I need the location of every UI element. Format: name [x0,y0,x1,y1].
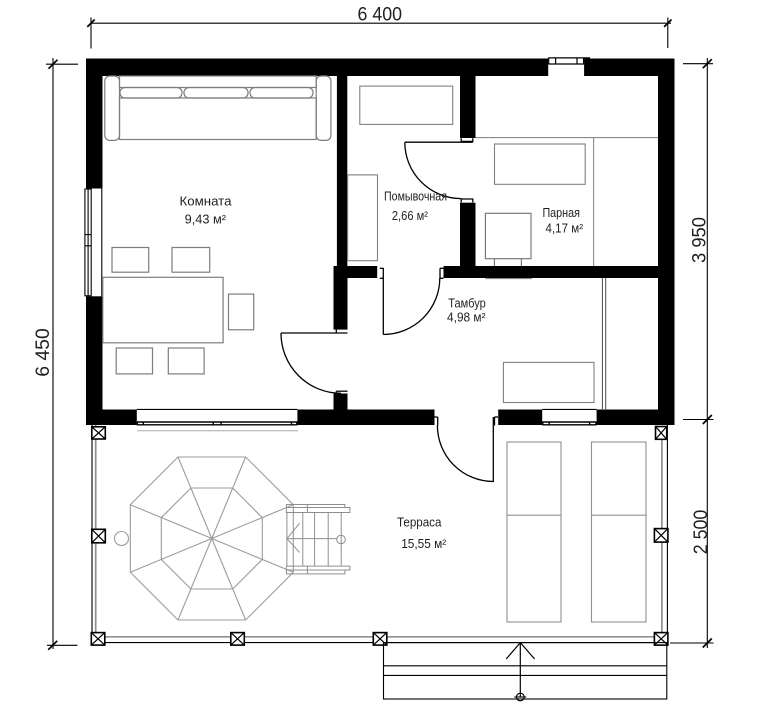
svg-text:4,17 м²: 4,17 м² [546,221,584,236]
svg-text:3 950: 3 950 [688,217,710,263]
svg-text:6 450: 6 450 [32,328,54,377]
svg-text:Помывочная: Помывочная [384,189,447,204]
svg-text:Комната: Комната [180,194,233,209]
svg-text:4,98 м²: 4,98 м² [447,309,486,324]
svg-text:9,43 м²: 9,43 м² [185,212,227,227]
svg-text:2,66 м²: 2,66 м² [392,208,429,223]
svg-text:Парная: Парная [542,205,580,220]
svg-text:6 400: 6 400 [358,4,403,26]
svg-text:Терраса: Терраса [397,514,442,529]
svg-text:Тамбур: Тамбур [448,296,486,311]
svg-text:2 500: 2 500 [690,510,712,555]
svg-text:15,55 м²: 15,55 м² [401,536,447,551]
